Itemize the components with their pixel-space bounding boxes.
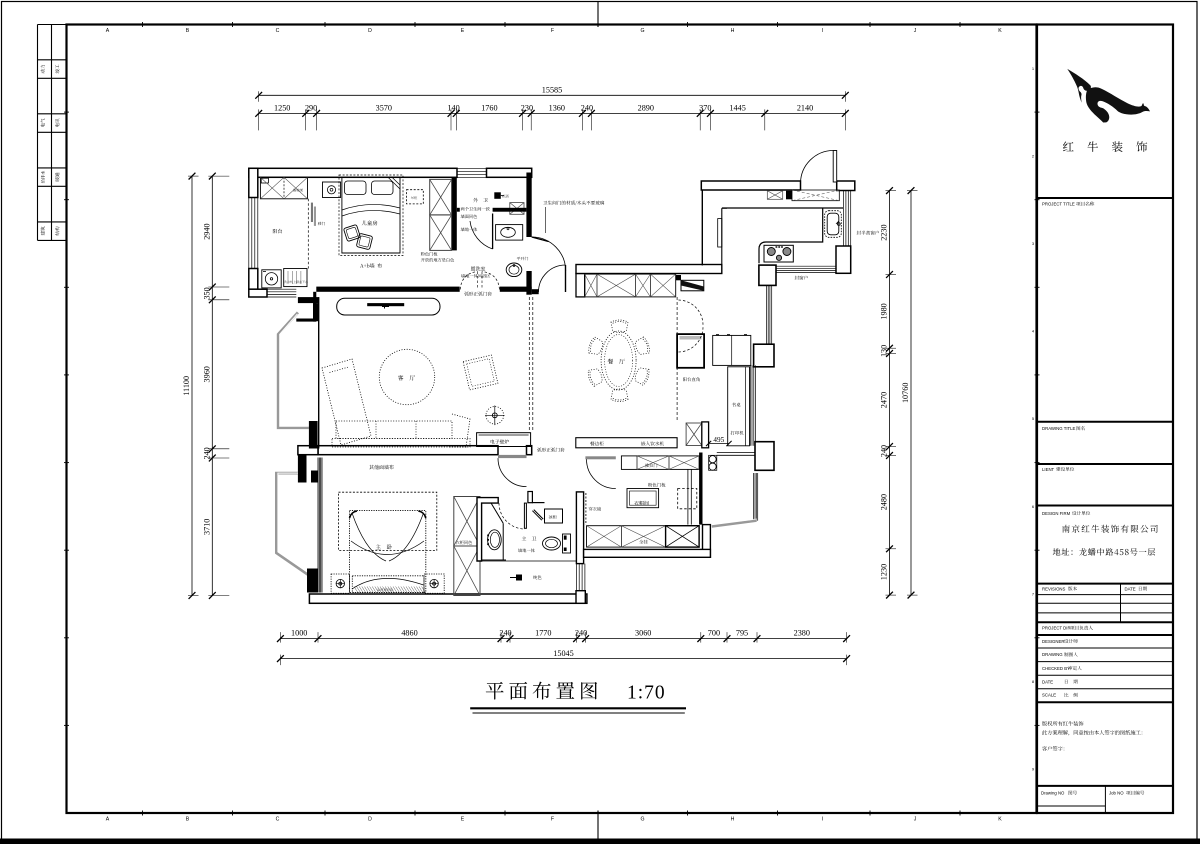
svg-text:C: C (276, 817, 280, 823)
svg-text:G: G (640, 817, 644, 823)
svg-text:DESIGNER: DESIGNER (1042, 639, 1064, 644)
svg-text:LIENT: LIENT (1042, 467, 1055, 472)
svg-text:2140: 2140 (797, 104, 813, 113)
svg-text:1000: 1000 (291, 628, 307, 637)
svg-text:2380: 2380 (794, 628, 810, 637)
svg-text:3570: 3570 (376, 104, 392, 113)
svg-text:DATE: DATE (1042, 679, 1053, 684)
svg-text:240: 240 (575, 628, 587, 637)
svg-text:1980: 1980 (880, 303, 889, 319)
svg-text:290: 290 (305, 104, 317, 113)
svg-text:J: J (914, 28, 917, 34)
svg-text:2470: 2470 (880, 392, 889, 408)
svg-text:140: 140 (447, 104, 459, 113)
svg-text:1230: 1230 (880, 564, 889, 580)
svg-text:A: A (106, 817, 110, 823)
svg-text:PROJECT DIR: PROJECT DIR (1042, 626, 1071, 631)
svg-text:SCALE: SCALE (1042, 693, 1056, 698)
svg-text:F: F (551, 817, 554, 823)
svg-text:130: 130 (880, 345, 889, 357)
svg-text:J: J (914, 817, 917, 823)
svg-text:2890: 2890 (638, 104, 654, 113)
svg-text:D: D (368, 28, 372, 34)
svg-text:3960: 3960 (203, 366, 212, 382)
svg-text:2230: 2230 (880, 224, 889, 240)
svg-text:DRAWING: DRAWING (1042, 652, 1063, 657)
svg-text:240: 240 (203, 447, 212, 459)
svg-text:2480: 2480 (880, 494, 889, 510)
svg-text:B: B (186, 28, 190, 34)
svg-text:1760: 1760 (481, 104, 497, 113)
svg-text:E: E (461, 28, 465, 34)
svg-text:10760: 10760 (901, 383, 910, 403)
svg-text:B: B (186, 817, 190, 823)
svg-text:3710: 3710 (203, 519, 212, 535)
svg-text:1360: 1360 (549, 104, 565, 113)
svg-text:700: 700 (708, 628, 720, 637)
svg-text:DRAWING TITLE: DRAWING TITLE (1042, 426, 1076, 431)
svg-text:240: 240 (581, 104, 593, 113)
svg-text:2940: 2940 (203, 223, 212, 239)
svg-text:DATE: DATE (1125, 586, 1136, 591)
svg-text:K: K (998, 817, 1002, 823)
svg-text:11100: 11100 (182, 376, 191, 396)
svg-text:A: A (106, 28, 110, 34)
svg-text:370: 370 (699, 104, 711, 113)
svg-text:PROJECT TITLE: PROJECT TITLE (1042, 202, 1075, 207)
svg-text:15045: 15045 (553, 649, 573, 658)
svg-text:H: H (731, 28, 735, 34)
svg-text:795: 795 (736, 628, 748, 637)
svg-text:Job NO: Job NO (1109, 791, 1124, 796)
svg-text:Drawing NO: Drawing NO (1041, 791, 1065, 796)
svg-text:1770: 1770 (535, 628, 551, 637)
svg-text:350: 350 (203, 287, 212, 299)
svg-text:4860: 4860 (401, 628, 417, 637)
svg-text:K: K (998, 28, 1002, 34)
svg-text:I: I (822, 28, 823, 34)
svg-text:D: D (368, 817, 372, 823)
svg-text:15585: 15585 (542, 86, 562, 95)
svg-text:495: 495 (713, 436, 724, 444)
svg-text:240: 240 (880, 445, 889, 457)
svg-text:E: E (461, 817, 465, 823)
svg-text:1445: 1445 (729, 104, 745, 113)
svg-text:3060: 3060 (635, 628, 651, 637)
svg-text:C: C (276, 28, 280, 34)
svg-text:CHECKED BY: CHECKED BY (1042, 666, 1070, 671)
svg-text:REVISIONS: REVISIONS (1042, 586, 1066, 591)
svg-text:240: 240 (499, 628, 511, 637)
svg-text:H: H (731, 817, 735, 823)
svg-text:DESIGN FIRM: DESIGN FIRM (1042, 511, 1071, 516)
svg-text:F: F (551, 28, 554, 34)
svg-text:G: G (640, 28, 644, 34)
svg-text:230: 230 (521, 104, 533, 113)
svg-text:1250: 1250 (274, 104, 290, 113)
svg-text:1:70: 1:70 (627, 683, 666, 704)
svg-text:I: I (822, 817, 823, 823)
